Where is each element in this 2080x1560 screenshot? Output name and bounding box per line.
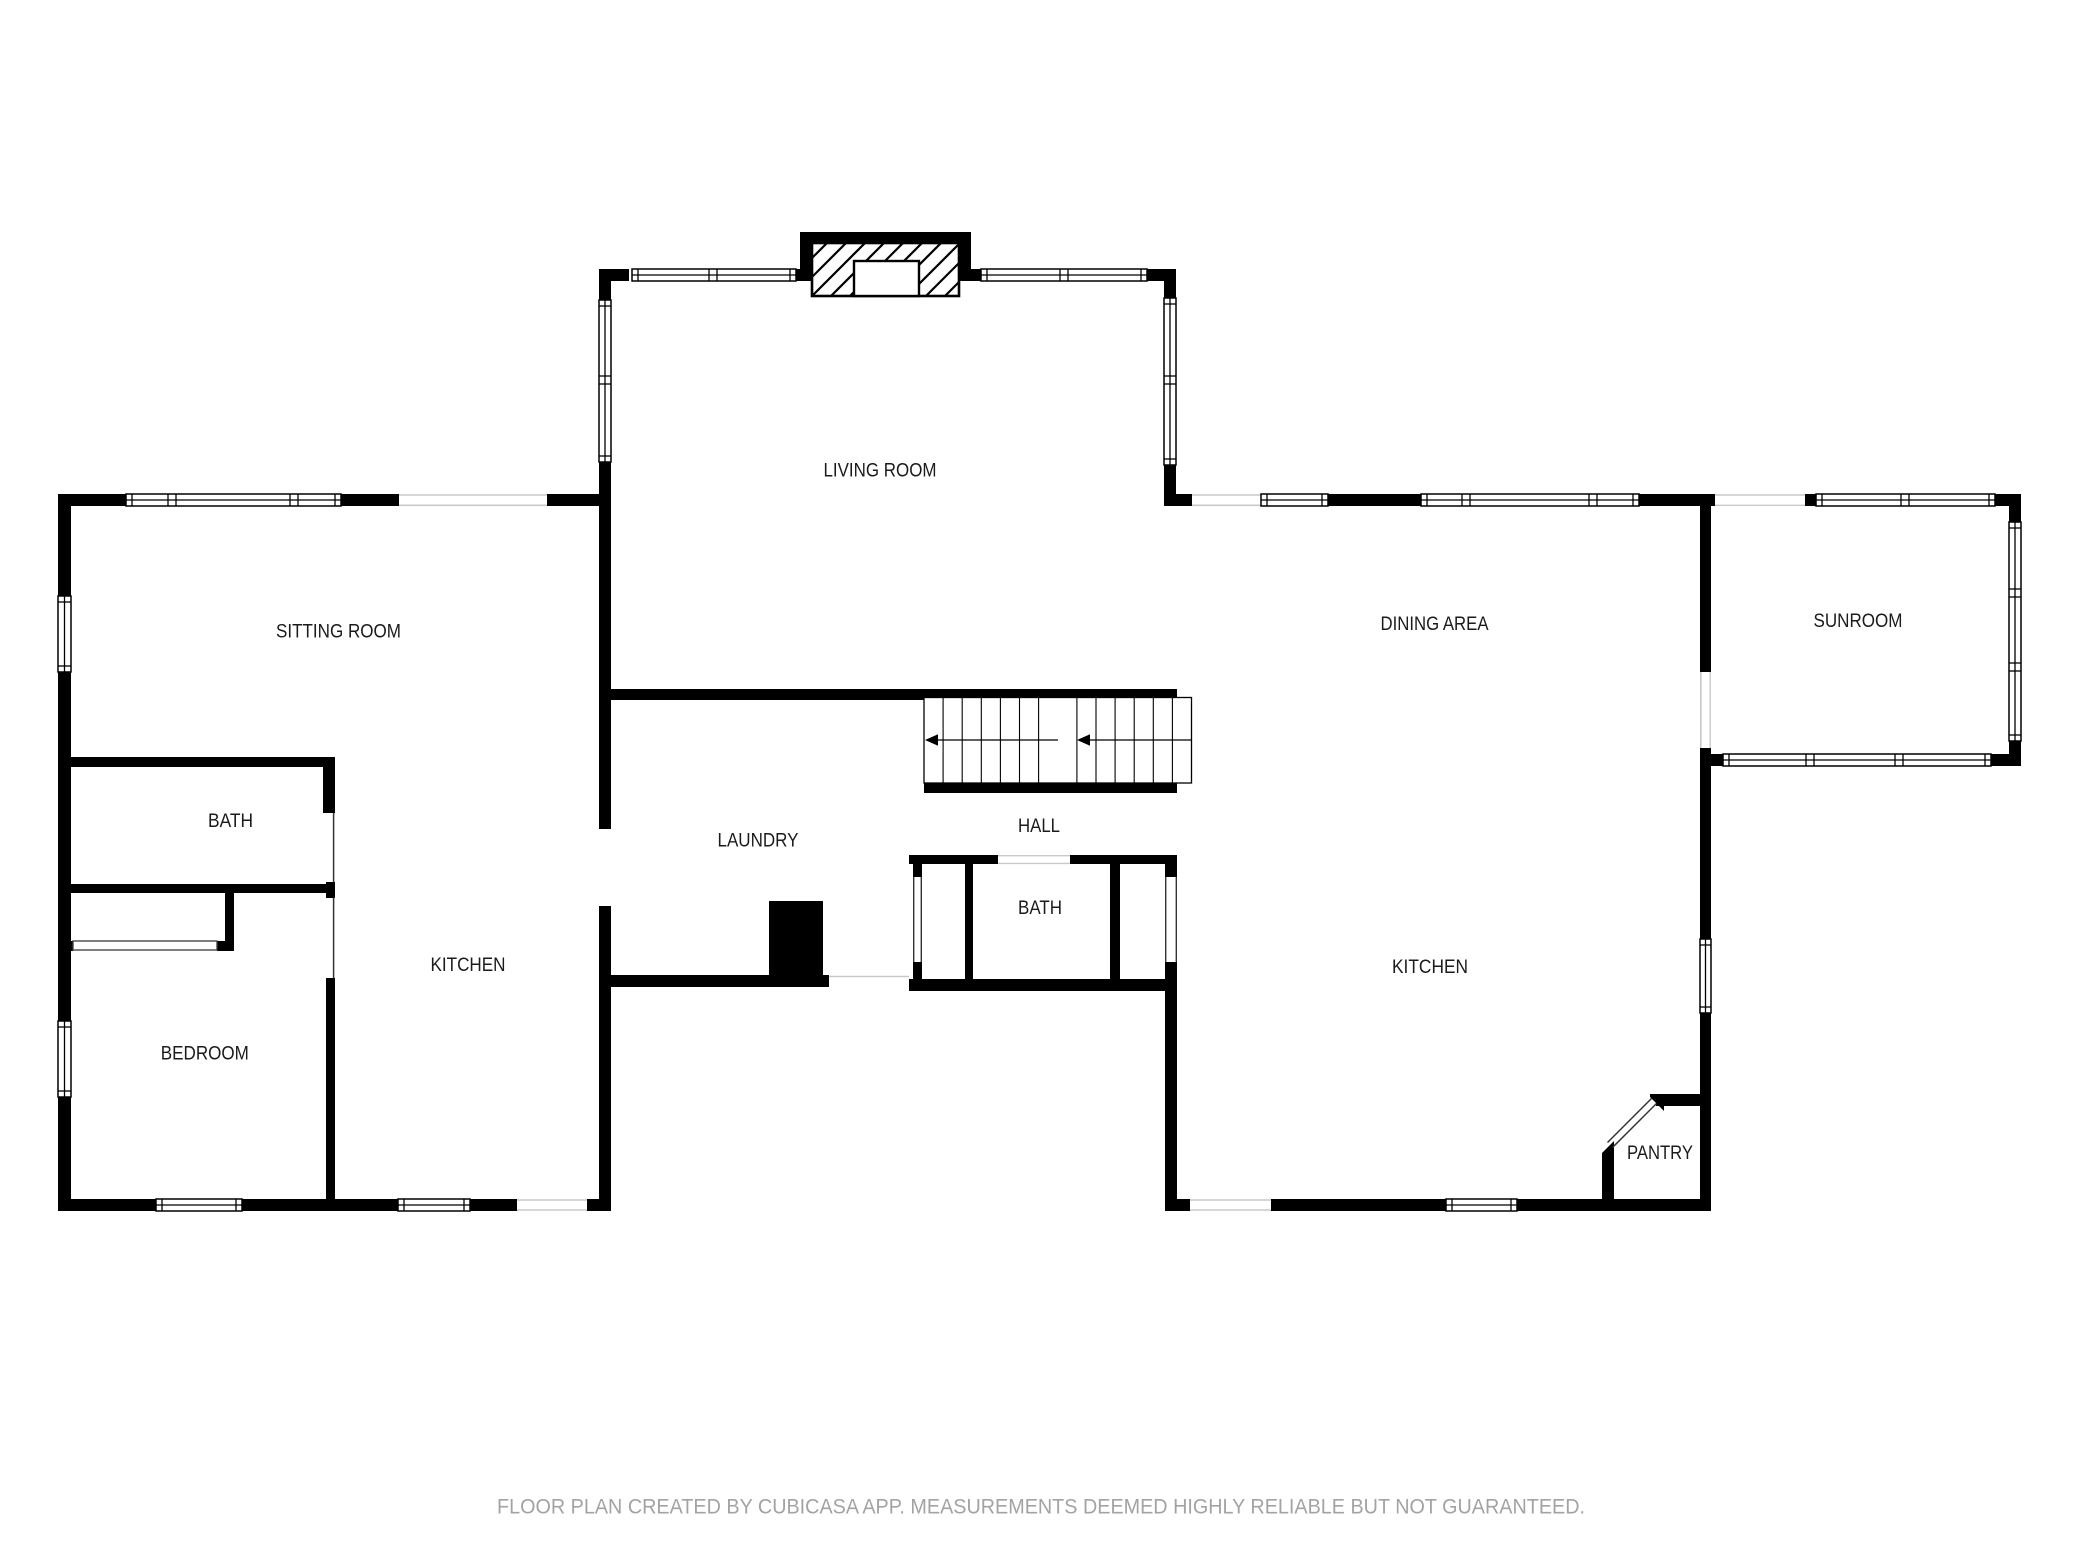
- svg-text:KITCHEN: KITCHEN: [1392, 956, 1468, 978]
- svg-text:HALL: HALL: [1018, 815, 1060, 837]
- svg-text:SITTING ROOM: SITTING ROOM: [276, 621, 401, 643]
- svg-text:SUNROOM: SUNROOM: [1814, 610, 1903, 632]
- svg-text:BATH: BATH: [1018, 897, 1062, 919]
- svg-text:LAUNDRY: LAUNDRY: [718, 830, 799, 852]
- svg-text:KITCHEN: KITCHEN: [431, 954, 506, 976]
- svg-text:PANTRY: PANTRY: [1627, 1142, 1693, 1164]
- svg-text:BATH: BATH: [208, 810, 253, 832]
- svg-text:BEDROOM: BEDROOM: [161, 1043, 249, 1065]
- svg-text:LIVING ROOM: LIVING ROOM: [824, 460, 937, 482]
- svg-text:DINING AREA: DINING AREA: [1381, 613, 1489, 635]
- svg-text:FLOOR PLAN CREATED BY CUBICASA: FLOOR PLAN CREATED BY CUBICASA APP. MEAS…: [497, 1496, 1585, 1519]
